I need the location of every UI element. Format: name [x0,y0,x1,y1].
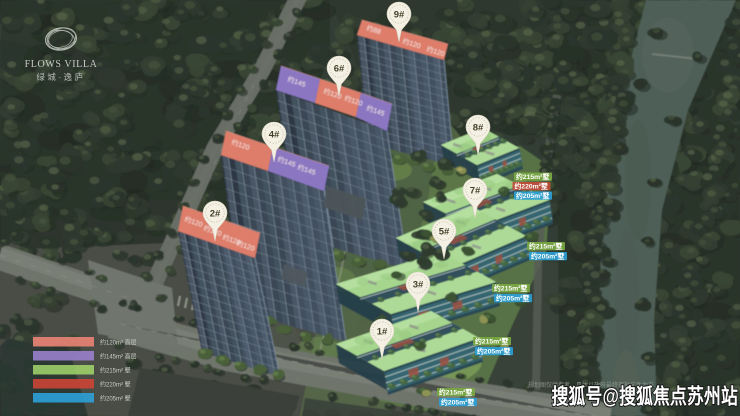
svg-text:搜狐号@搜狐焦点苏州站: 搜狐号@搜狐焦点苏州站 [552,384,738,409]
svg-text:9#: 9# [394,10,405,21]
svg-text:约215m²墅: 约215m²墅 [475,337,508,346]
svg-text:约145m² 高层: 约145m² 高层 [100,353,137,361]
svg-text:3#: 3# [413,280,424,291]
svg-text:8#: 8# [473,123,484,134]
svg-text:约215m²墅: 约215m²墅 [529,242,562,251]
svg-text:约220m²墅: 约220m²墅 [515,182,548,191]
svg-text:绿城·逸庐: 绿城·逸庐 [36,72,85,82]
svg-text:约205m²墅: 约205m²墅 [441,398,474,407]
svg-text:约215m²墅: 约215m²墅 [494,284,527,293]
svg-text:约120m² 高层: 约120m² 高层 [100,339,137,347]
svg-text:约215m² 墅: 约215m² 墅 [100,367,131,375]
svg-text:FLOWS VILLA: FLOWS VILLA [25,59,98,70]
svg-text:约215m²墅: 约215m²墅 [516,172,549,181]
svg-text:4#: 4# [269,130,280,141]
svg-text:约205m² 墅: 约205m² 墅 [100,395,131,403]
svg-text:6#: 6# [334,64,345,75]
svg-text:约205m²墅: 约205m²墅 [531,252,564,261]
svg-text:约215m²墅: 约215m²墅 [439,388,472,397]
svg-text:2#: 2# [210,209,221,220]
svg-text:7#: 7# [470,186,481,197]
svg-text:约205m²墅: 约205m²墅 [496,294,529,303]
svg-text:约220m² 墅: 约220m² 墅 [100,381,131,389]
svg-text:约205m²墅: 约205m²墅 [477,347,510,356]
svg-text:1#: 1# [377,327,388,338]
svg-text:5#: 5# [439,227,450,238]
svg-text:约205m²墅: 约205m²墅 [516,191,549,200]
